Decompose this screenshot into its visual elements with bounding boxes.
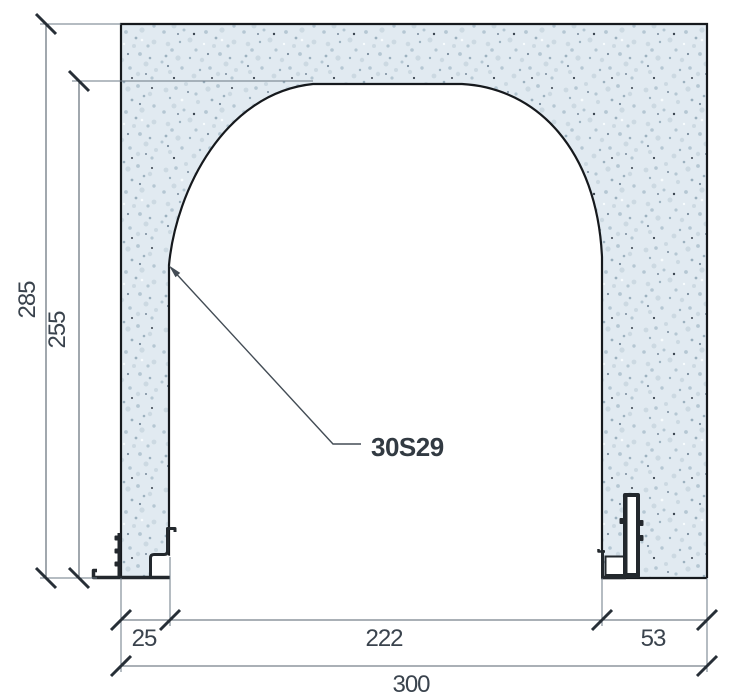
dim-label-overall-width: 300 (392, 673, 429, 697)
shadow-gap-box-right (606, 557, 625, 576)
product-code-label: 30S29 (371, 434, 444, 460)
arch-opening-outline (169, 84, 602, 556)
dim-label-right-jamb-width: 53 (641, 627, 666, 651)
dim-label-opening-height: 255 (46, 311, 70, 348)
dim-label-opening-width: 222 (365, 627, 402, 651)
wall-section (121, 24, 707, 578)
technical-drawing: 285 255 25 222 53 300 30S29 (0, 0, 729, 700)
channel-slot-right (628, 497, 637, 573)
dim-label-overall-height: 285 (16, 281, 40, 318)
leader-line (169, 266, 361, 445)
dim-label-left-jamb-width: 25 (132, 627, 157, 651)
shadow-gap-notch-left (151, 556, 170, 578)
bead-crimps-left (115, 536, 119, 567)
wall-fill (121, 24, 707, 578)
drawing-graphics (0, 0, 729, 700)
